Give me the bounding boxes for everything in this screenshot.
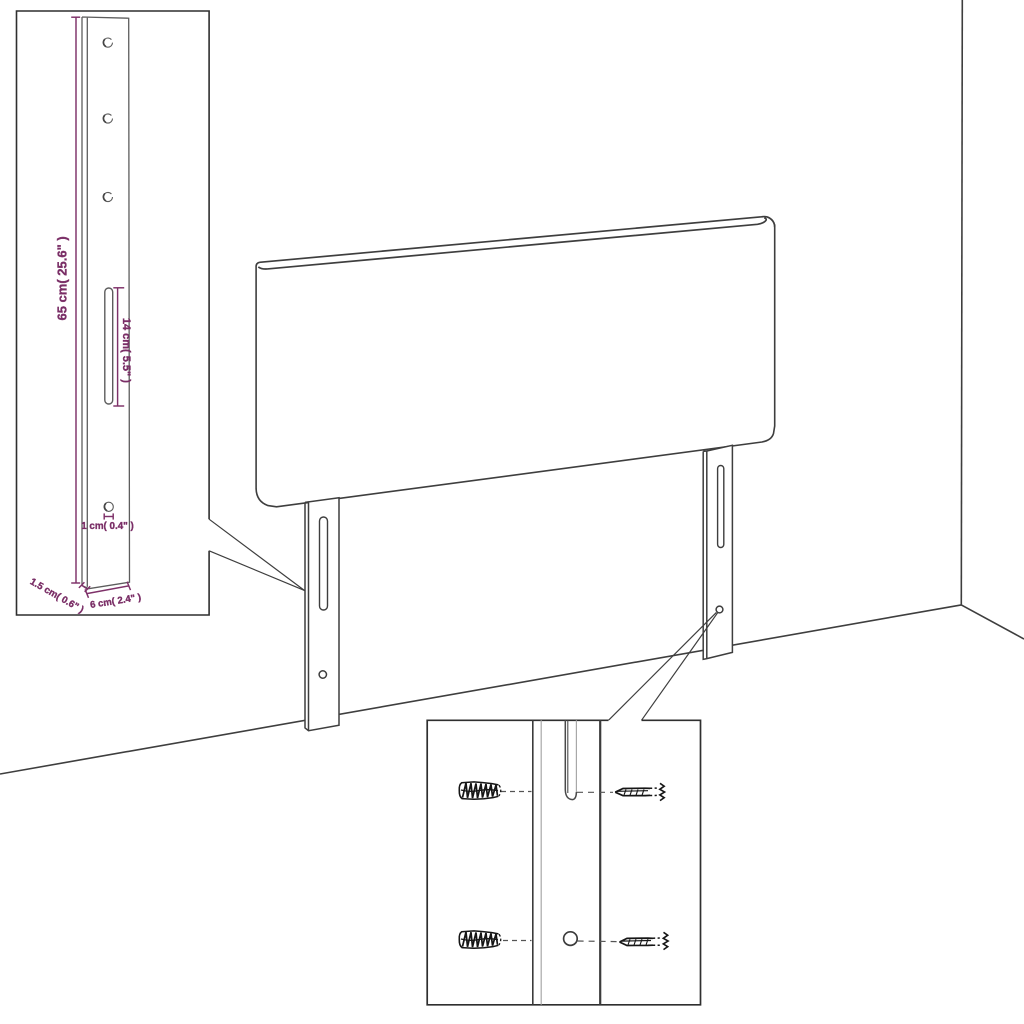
svg-text:65 cm( 25.6" ): 65 cm( 25.6" )	[55, 236, 70, 320]
svg-text:1 cm( 0.4" ): 1 cm( 0.4" )	[81, 521, 134, 532]
svg-text:14 cm( 5.5" ): 14 cm( 5.5" )	[120, 318, 132, 383]
